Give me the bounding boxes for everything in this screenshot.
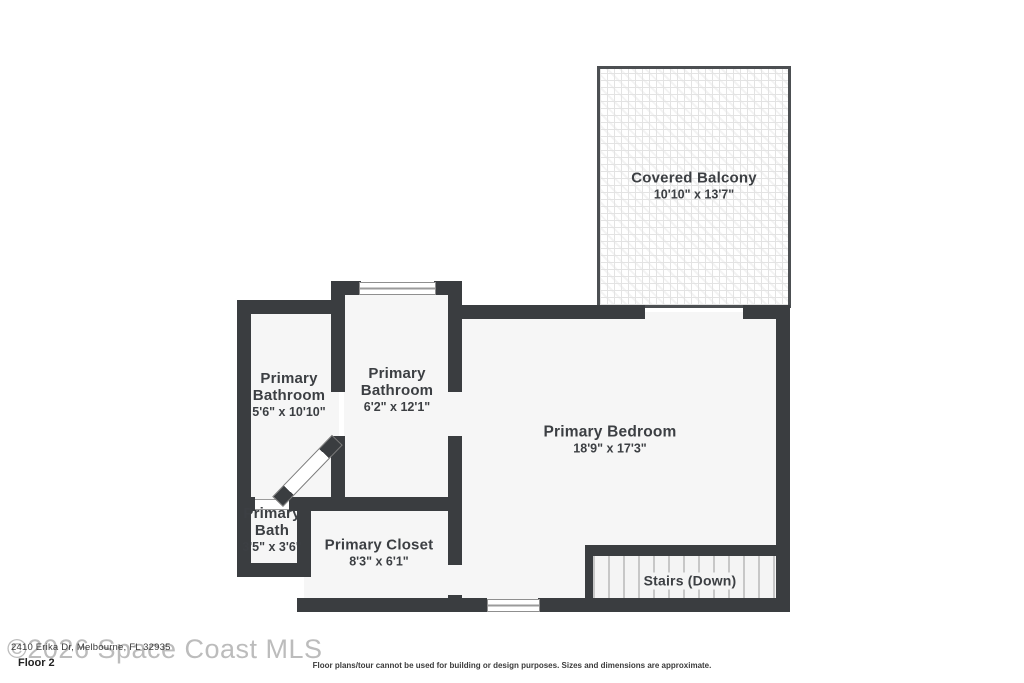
disclaimer-text: Floor plans/tour cannot be used for buil… xyxy=(0,661,1024,670)
room-name: Stairs (Down) xyxy=(644,573,737,590)
room-dimensions: 5'6" x 10'10" xyxy=(239,404,339,420)
room-name: Primary Bath xyxy=(232,505,312,539)
window-bathroom-mid xyxy=(359,282,436,295)
label-covered-balcony: Covered Balcony 10'10" x 13'7" xyxy=(631,170,757,203)
room-dimensions: 18'9" x 17'3" xyxy=(543,441,676,457)
room-name: Primary Bathroom xyxy=(239,370,339,404)
label-primary-bathroom-left: Primary Bathroom 5'6" x 10'10" xyxy=(239,370,339,420)
room-name: Primary Bedroom xyxy=(543,424,676,441)
wall-bedroom-right xyxy=(776,305,790,612)
floor-plan: Covered Balcony 10'10" x 13'7" Primary B… xyxy=(0,0,1024,683)
label-primary-bath: Primary Bath 3'5" x 3'6" xyxy=(232,505,312,555)
room-name: Primary Closet xyxy=(325,537,434,554)
label-primary-bedroom: Primary Bedroom 18'9" x 17'3" xyxy=(543,424,676,457)
wall-bedroom-top-left xyxy=(448,305,645,319)
wall-bedroom-left-lower xyxy=(448,595,462,612)
floor-number-label: Floor 2 xyxy=(18,657,55,669)
wall-bottom-right xyxy=(538,598,790,612)
room-name: Primary Bathroom xyxy=(342,365,452,399)
label-primary-closet: Primary Closet 8'3" x 6'1" xyxy=(325,537,434,570)
room-dimensions: 6'2" x 12'1" xyxy=(342,399,452,415)
wall-mid-right xyxy=(289,497,462,511)
wall-bathroom-left-top xyxy=(237,300,345,314)
room-dimensions: 3'5" x 3'6" xyxy=(232,539,312,555)
room-dimensions: 8'3" x 6'1" xyxy=(325,554,434,570)
wall-stairs-top xyxy=(585,545,790,556)
room-dimensions: 10'10" x 13'7" xyxy=(631,187,757,203)
room-name: Covered Balcony xyxy=(631,170,757,187)
label-primary-bathroom-mid: Primary Bathroom 6'2" x 12'1" xyxy=(342,365,452,415)
label-stairs-down: Stairs (Down) xyxy=(641,573,740,590)
property-address: 2410 Erika Dr, Melbourne, FL 32935 xyxy=(11,642,171,653)
wall-stairs-left xyxy=(585,545,593,612)
window-bedroom-bottom xyxy=(487,599,540,612)
wall-bedroom-left-mid xyxy=(448,436,462,565)
